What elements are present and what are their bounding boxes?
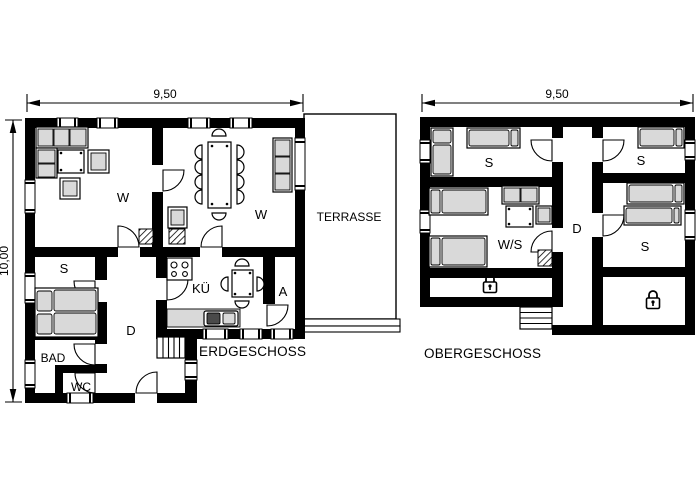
padlock-icon	[647, 291, 660, 309]
window	[295, 138, 305, 190]
window	[685, 210, 695, 240]
room-label-bedroom: S	[60, 261, 69, 276]
door	[603, 215, 624, 236]
dimension-value: 9,50	[153, 87, 177, 101]
room-label-hall: D	[126, 323, 135, 338]
floor-title-erdgeschoss: ERDGESCHOSS	[199, 344, 306, 359]
sofa	[273, 138, 292, 192]
bedroom-right-top-furniture	[638, 127, 684, 148]
room-label-bedroom-left: S	[485, 155, 494, 170]
door	[603, 140, 624, 161]
door	[118, 226, 139, 247]
room-label-dining: W	[255, 207, 268, 222]
dimension-value: 9,50	[545, 87, 569, 101]
table	[506, 206, 533, 227]
window	[185, 360, 197, 380]
tv-cabinet	[168, 207, 187, 228]
dimension-width-erdgeschoss: 9,50	[27, 87, 303, 112]
terrace-step	[299, 319, 400, 326]
window	[97, 118, 118, 128]
sofa	[502, 186, 539, 204]
stove	[167, 258, 192, 280]
dining-table	[208, 142, 231, 208]
window	[188, 118, 210, 128]
window	[685, 140, 695, 160]
room-label-bedroom-right-top: S	[637, 153, 646, 168]
bedroom-left-furniture	[431, 128, 520, 176]
room-label-hall: D	[572, 221, 581, 236]
erdgeschoss-plan: W W S D BAD WC KÜ A TERRASSE ERDGESCHOSS…	[0, 87, 400, 403]
room-label-living: W	[117, 190, 130, 205]
armchair	[536, 206, 552, 224]
armchair	[88, 150, 109, 173]
window	[230, 118, 252, 128]
chimney-hatch	[538, 250, 552, 266]
door	[167, 279, 188, 300]
door	[201, 226, 222, 247]
room-label-wc: WC	[71, 380, 91, 394]
window	[25, 360, 35, 388]
floorplan-drawing: W W S D BAD WC KÜ A TERRASSE ERDGESCHOSS…	[0, 0, 700, 500]
door	[267, 305, 288, 326]
dimension-value: 10,00	[0, 246, 11, 276]
window	[67, 393, 93, 403]
room-label-storage: A	[279, 284, 288, 299]
window	[25, 273, 35, 303]
room-label-bedroom-right-mid: S	[641, 239, 650, 254]
coffee-table	[58, 150, 84, 173]
obergeschoss-plan: S S W/S D S OBERGESCHOSS 9,50	[420, 87, 695, 361]
kitchen-counter-sink	[167, 309, 240, 327]
stairs-obergeschoss	[520, 307, 552, 329]
room-label-terrace: TERRASSE	[317, 210, 382, 224]
door	[531, 231, 552, 252]
window	[240, 329, 262, 339]
dimension-width-obergeschoss: 9,50	[422, 87, 693, 112]
living-room-furniture	[36, 127, 109, 199]
living-sleeping-furniture	[429, 186, 552, 267]
window	[271, 329, 293, 339]
armchair	[60, 178, 80, 199]
window	[203, 329, 228, 339]
door	[163, 170, 184, 191]
window	[420, 140, 430, 163]
room-label-living-sleeping: W/S	[498, 237, 523, 252]
room-label-bathroom: BAD	[41, 351, 66, 365]
door	[74, 344, 95, 365]
stairs-erdgeschoss	[157, 337, 185, 358]
floorplan-canvas: W W S D BAD WC KÜ A TERRASSE ERDGESCHOSS…	[0, 0, 700, 500]
room-label-kitchen: KÜ	[192, 281, 210, 296]
dimension-height-erdgeschoss: 10,00	[0, 120, 22, 402]
bedroom-right-mid-furniture	[624, 183, 684, 225]
floor-title-obergeschoss: OBERGESCHOSS	[424, 346, 541, 361]
bedroom-furniture	[35, 288, 98, 337]
terrace-step	[299, 326, 400, 332]
entrance-door	[136, 372, 157, 393]
door	[531, 140, 552, 161]
dining-room-furniture	[195, 129, 292, 220]
window	[25, 180, 35, 213]
kitchen-table	[232, 270, 253, 297]
